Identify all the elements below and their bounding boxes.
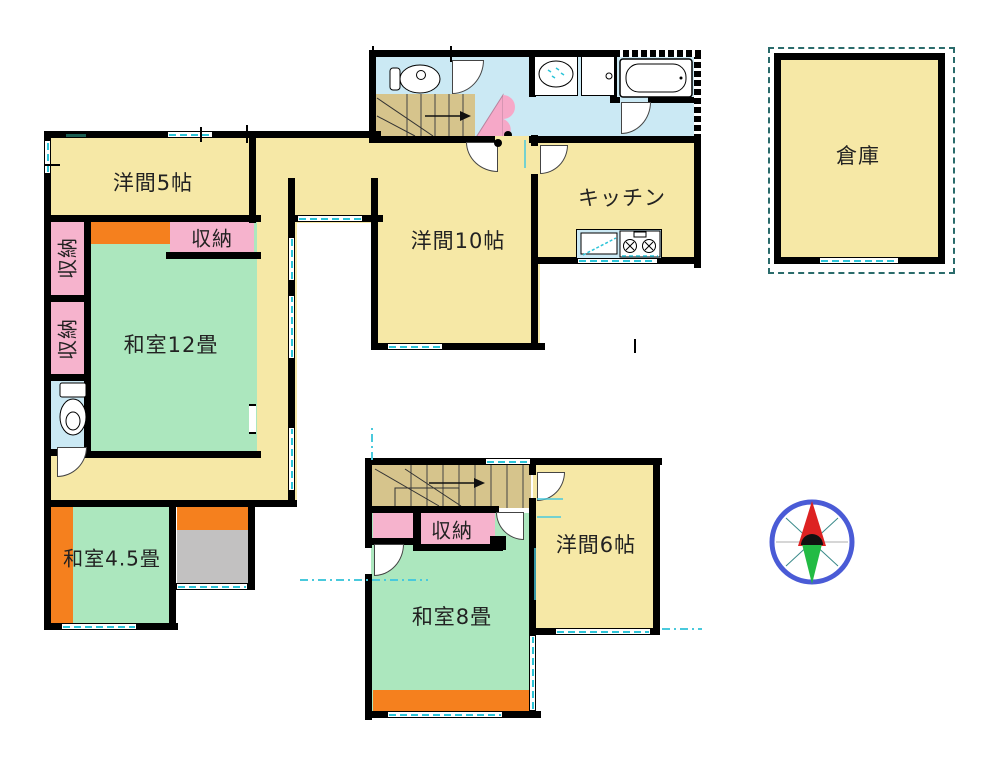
door-pivot-dot (494, 139, 502, 147)
dimension-tick (450, 46, 452, 62)
toilet-icon-lower (56, 382, 90, 438)
bath-hatch-border (614, 50, 701, 57)
wall-opening (249, 404, 256, 434)
bath-hatch-border (694, 52, 701, 140)
genkan-floor (177, 530, 249, 583)
guide-line (534, 548, 536, 600)
wall (774, 53, 945, 60)
wall (44, 131, 381, 138)
corridor-top-floor (46, 133, 377, 223)
window (298, 215, 362, 222)
guide-line (662, 628, 702, 630)
wall (365, 574, 372, 720)
guide-line (537, 498, 563, 500)
dimension-tick (200, 127, 202, 142)
window (388, 711, 502, 718)
room-label-washitsu12: 和室12畳 (124, 329, 219, 359)
wall (169, 500, 176, 630)
wall (365, 458, 372, 548)
wall (44, 215, 261, 222)
wall (369, 136, 701, 143)
wall (653, 458, 660, 635)
door-opening (531, 146, 538, 174)
room-label-washitsu8: 和室8畳 (412, 601, 492, 631)
genkan-step-strip (177, 507, 249, 530)
wall (44, 295, 90, 302)
closet-label-top: 収納 (191, 223, 233, 252)
closet-label-left-b: 収納 (52, 318, 81, 360)
dimension-tick (372, 46, 374, 60)
wall (166, 252, 261, 259)
window (288, 238, 295, 280)
guide-line (537, 516, 561, 518)
window (529, 636, 536, 710)
washer-pan-icon (581, 56, 615, 96)
wall (84, 451, 261, 458)
wall-marker (66, 134, 86, 137)
wall (249, 137, 256, 223)
window (177, 583, 247, 590)
kitchen-counter (576, 229, 662, 259)
window (556, 628, 650, 635)
floor-plan: 洋間5帖 和室12畳 洋間10帖 キッチン 倉庫 和室4.5畳 和室8畳 洋間6… (0, 0, 998, 768)
wall (369, 506, 499, 513)
wall (938, 53, 945, 264)
window (168, 131, 212, 138)
room-label-yoma6: 洋間6帖 (556, 529, 636, 559)
window (44, 141, 51, 173)
room-label-yoma5: 洋間5帖 (113, 167, 193, 197)
compass (764, 494, 860, 590)
dimension-tick (246, 125, 248, 143)
window (486, 458, 530, 465)
wall (371, 178, 378, 350)
wall (369, 50, 376, 138)
dimension-tick (634, 339, 636, 353)
stairs-lower (371, 465, 531, 508)
room-label-souko: 倉庫 (836, 140, 880, 170)
window (288, 296, 295, 358)
window (388, 343, 442, 350)
washbasin-icon (534, 56, 578, 96)
washitsu8-tokonoma (373, 690, 530, 713)
room-label-washitsu45: 和室4.5畳 (63, 543, 161, 572)
guide-line (300, 579, 428, 581)
guide-line (371, 424, 373, 460)
wall (529, 498, 536, 516)
dimension-tick (44, 164, 60, 166)
wall (44, 500, 51, 630)
door-pivot-block (490, 536, 506, 550)
tokonoma-strip (89, 221, 172, 244)
window (62, 623, 136, 630)
wall (248, 500, 255, 588)
wall (44, 374, 90, 381)
stairs-upper (375, 94, 475, 138)
wall (529, 458, 536, 475)
closet-small-floor (373, 511, 415, 541)
room-label-kitchen: キッチン (578, 182, 666, 212)
closet-label-left-a: 収納 (52, 237, 81, 279)
guide-line (524, 140, 526, 168)
bathtub-icon (619, 58, 693, 98)
closet-label-bottom: 収納 (431, 515, 473, 544)
folding-door-pink (473, 93, 517, 141)
room-label-yoma10: 洋間10帖 (411, 225, 506, 255)
wall (44, 449, 58, 456)
toilet-icon-upper (388, 62, 442, 98)
window (820, 257, 898, 264)
wall (774, 53, 781, 264)
window (288, 428, 295, 490)
